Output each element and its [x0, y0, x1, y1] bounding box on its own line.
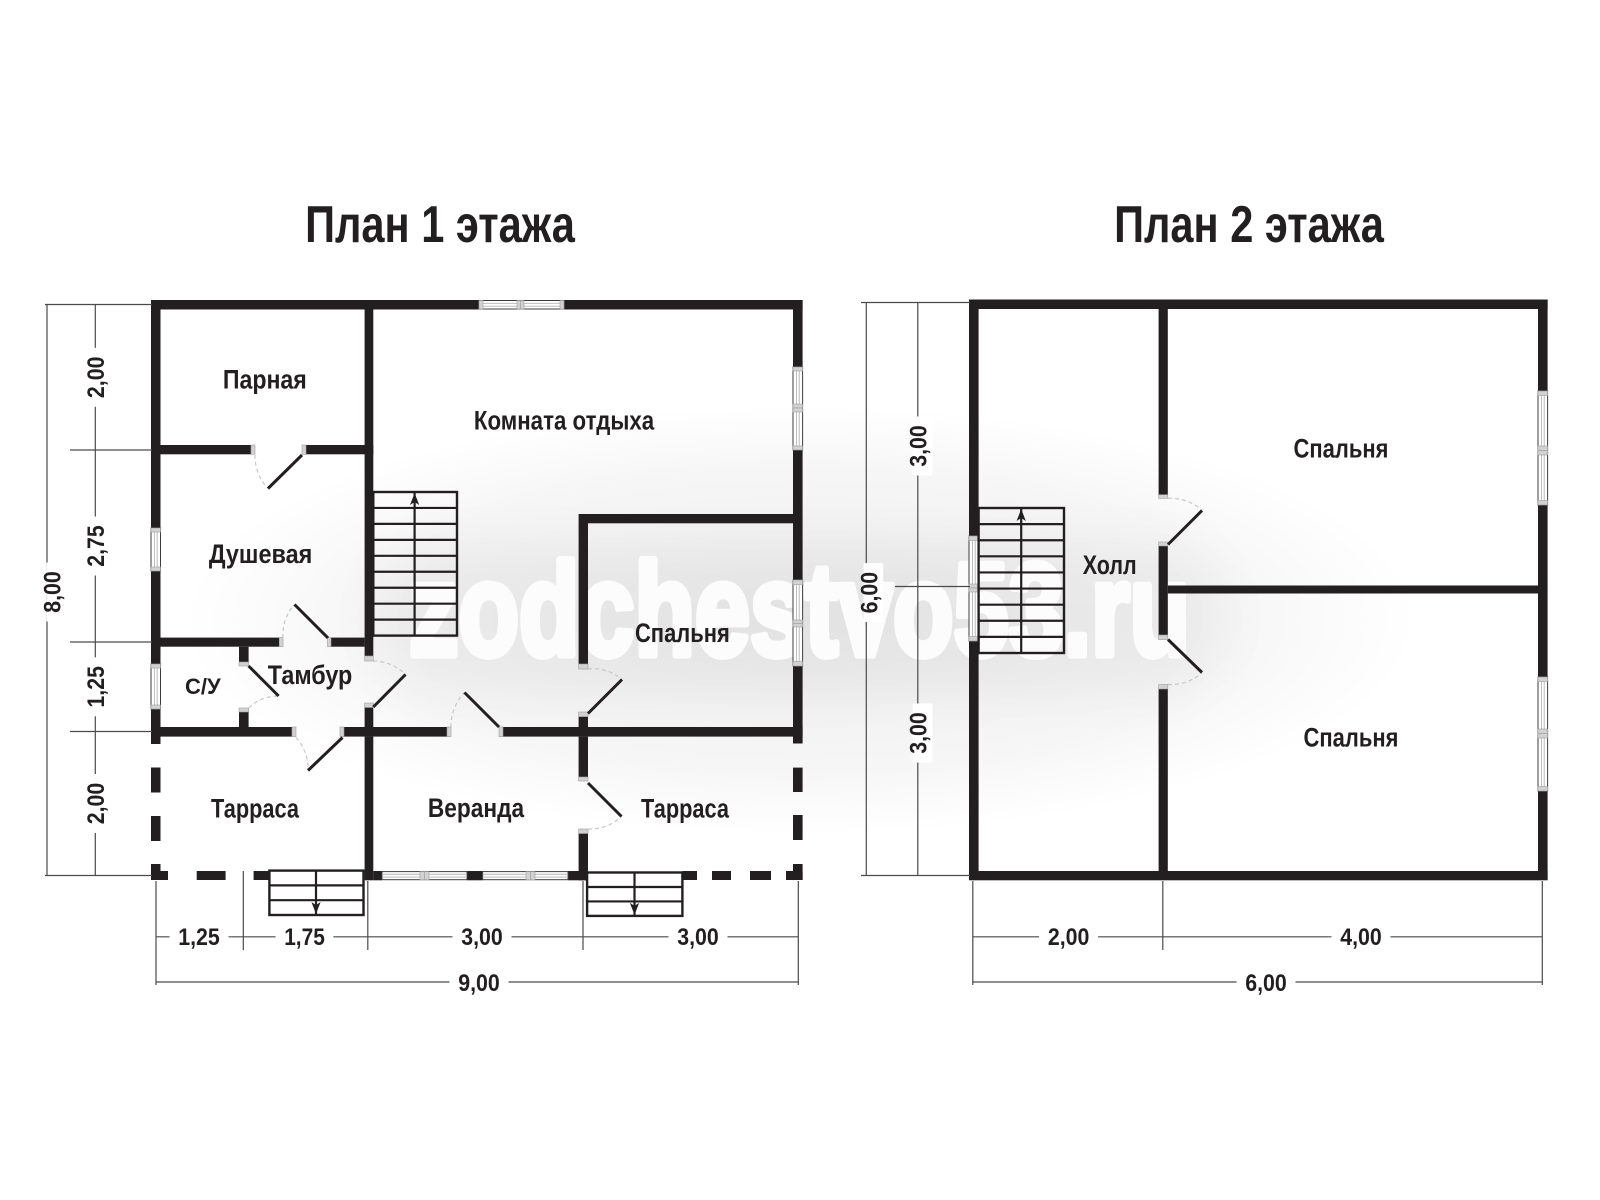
svg-text:Тамбур: Тамбур: [268, 660, 353, 690]
svg-text:План 2 этажа: План 2 этажа: [1114, 195, 1385, 254]
svg-text:Душевая: Душевая: [209, 540, 312, 570]
svg-text:2,75: 2,75: [82, 525, 109, 567]
svg-text:1,25: 1,25: [82, 666, 109, 708]
svg-text:1,25: 1,25: [178, 923, 220, 950]
svg-text:2,00: 2,00: [82, 357, 109, 399]
svg-text:6,00: 6,00: [855, 572, 882, 614]
svg-text:Тарраса: Тарраса: [211, 794, 299, 824]
svg-text:1,75: 1,75: [284, 924, 325, 951]
svg-text:С/У: С/У: [185, 674, 221, 699]
svg-text:8,00: 8,00: [38, 571, 65, 613]
svg-text:3,00: 3,00: [461, 923, 503, 950]
svg-text:Холл: Холл: [1083, 551, 1137, 581]
svg-text:3,00: 3,00: [904, 425, 931, 467]
svg-text:Спальня: Спальня: [1294, 435, 1389, 465]
svg-text:3,00: 3,00: [904, 712, 931, 754]
svg-text:3,00: 3,00: [677, 923, 719, 950]
svg-text:9,00: 9,00: [458, 969, 500, 996]
svg-text:2,00: 2,00: [82, 783, 109, 825]
svg-text:6,00: 6,00: [1245, 969, 1287, 996]
svg-text:4,00: 4,00: [1340, 923, 1382, 950]
svg-text:Спальня: Спальня: [635, 619, 730, 649]
svg-text:Веранда: Веранда: [428, 793, 525, 823]
svg-text:План 1 этажа: План 1 этажа: [305, 195, 576, 254]
svg-text:Спальня: Спальня: [1304, 724, 1399, 754]
svg-text:Парная: Парная: [223, 365, 307, 395]
svg-text:Тарраса: Тарраса: [641, 794, 729, 824]
svg-text:Комната отдыха: Комната отдыха: [474, 407, 655, 436]
svg-text:2,00: 2,00: [1048, 923, 1090, 950]
